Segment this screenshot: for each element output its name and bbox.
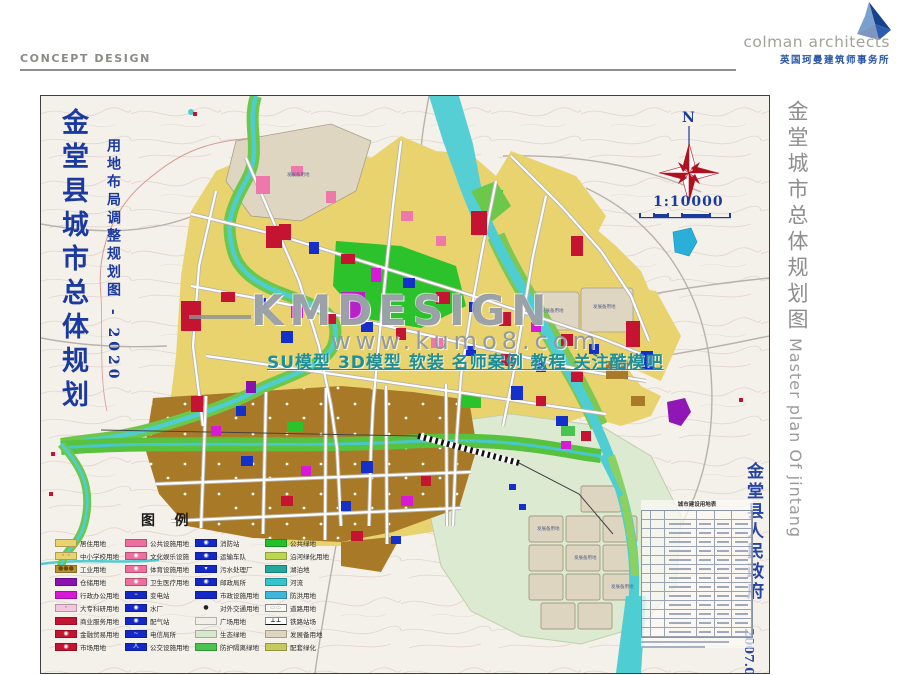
legend-item-label: 河流 — [290, 577, 303, 587]
legend-item: 配套绿化 — [265, 640, 335, 653]
table-cell — [715, 565, 733, 573]
legend-item-label: 道路用地 — [290, 603, 316, 613]
legend-item-label: 卫生医疗用地 — [150, 577, 189, 587]
legend-item: 商业服务用地 — [55, 614, 125, 627]
table-cell — [697, 628, 715, 636]
legend-column: 公共设施用地◉文化娱乐设施◉体育设施用地◉卫生医疗用地⌁变电站◉水厂◉配气站~电… — [125, 536, 195, 653]
table-cell — [642, 610, 651, 618]
table-cell — [665, 574, 697, 582]
table-cell — [642, 601, 651, 609]
table-note — [641, 646, 705, 648]
scale-label: 1:10000 — [653, 194, 724, 210]
legend-item: ◉卫生医疗用地 — [125, 575, 195, 588]
table-cell — [732, 610, 752, 618]
legend-swatch: ▭▭ — [265, 604, 287, 612]
legend-item-label: 防洪用地 — [290, 590, 316, 600]
map-legend: 图 例 居住用地◦ ◦中小学校用地●●●工业用地仓储用地行政办公用地◦大专科研用… — [55, 510, 347, 668]
page-title: CONCEPT DESIGN — [20, 52, 151, 65]
legend-item-label: 体育设施用地 — [150, 564, 189, 574]
legend-swatch — [55, 539, 77, 547]
side-title-chinese: 金堂城市总体规划图 — [782, 100, 812, 350]
table-cell — [651, 556, 664, 564]
legend-item: 市政设施用地 — [195, 588, 265, 601]
legend-swatch: ● — [195, 604, 217, 612]
table-cell — [665, 538, 697, 546]
table-cell — [665, 592, 697, 600]
table-cell — [732, 529, 752, 537]
legend-item: 居住用地 — [55, 536, 125, 549]
legend-item: ◉配气站 — [125, 614, 195, 627]
table-cell — [665, 628, 697, 636]
table-cell — [642, 529, 651, 537]
legend-swatch: ◉ — [125, 578, 147, 586]
legend-item-label: 公交设施用地 — [150, 642, 189, 652]
legend-item: ◉邮政局所 — [195, 575, 265, 588]
table-cell — [665, 583, 697, 591]
table-cell — [697, 520, 715, 528]
legend-swatch: ◉ — [195, 552, 217, 560]
table-cell — [642, 619, 651, 627]
legend-item: ◦大专科研用地 — [55, 601, 125, 614]
table-cell — [642, 511, 651, 519]
table-cell — [642, 574, 651, 582]
table-cell — [665, 619, 697, 627]
table-cell — [697, 601, 715, 609]
table-cell — [651, 619, 664, 627]
legend-item: ◉市场用地 — [55, 640, 125, 653]
land-use-table-title: 城市建设用地表 — [641, 500, 753, 508]
legend-item-label: 居住用地 — [80, 538, 106, 548]
table-cell — [732, 565, 752, 573]
legend-item-label: 广场用地 — [220, 616, 246, 626]
legend-item: 仓储用地 — [55, 575, 125, 588]
legend-swatch — [265, 539, 287, 547]
legend-item: 沿河绿化用地 — [265, 549, 335, 562]
legend-item: 人公交设施用地 — [125, 640, 195, 653]
land-use-table: 城市建设用地表 — [641, 500, 753, 648]
legend-item-label: 公共设施用地 — [150, 538, 189, 548]
legend-columns: 居住用地◦ ◦中小学校用地●●●工业用地仓储用地行政办公用地◦大专科研用地商业服… — [55, 536, 335, 653]
table-cell — [732, 592, 752, 600]
table-cell — [651, 520, 664, 528]
legend-item-label: 商业服务用地 — [80, 616, 119, 626]
legend-swatch — [195, 591, 217, 599]
table-cell — [651, 529, 664, 537]
table-cell — [732, 556, 752, 564]
logo-subtitle: 英国珂曼建筑师事务所 — [780, 52, 890, 66]
legend-column: 公共绿地沿河绿化用地湖泊地河流防洪用地▭▭道路用地⊥⊥铁路站场发展备用地配套绿化 — [265, 536, 335, 653]
legend-item: 防护隔离绿地 — [195, 640, 265, 653]
legend-swatch — [265, 578, 287, 586]
legend-swatch: ●●● — [55, 565, 77, 573]
legend-swatch: ◉ — [195, 578, 217, 586]
table-cell — [732, 628, 752, 636]
legend-swatch: ◉ — [55, 643, 77, 651]
table-cell — [665, 610, 697, 618]
legend-item: ~电信局所 — [125, 627, 195, 640]
table-cell — [715, 520, 733, 528]
legend-swatch: 人 — [125, 643, 147, 651]
reserve-block-label: 发展备用地 — [593, 304, 616, 310]
table-cell — [665, 529, 697, 537]
table-cell — [697, 619, 715, 627]
table-cell — [732, 574, 752, 582]
table-cell — [665, 556, 697, 564]
table-cell — [715, 511, 733, 519]
legend-item: 公共绿地 — [265, 536, 335, 549]
table-cell — [697, 529, 715, 537]
legend-item-label: 铁路站场 — [290, 616, 316, 626]
table-cell — [697, 538, 715, 546]
legend-swatch: ◉ — [125, 604, 147, 612]
table-cell — [715, 592, 733, 600]
legend-item: ◦ ◦中小学校用地 — [55, 549, 125, 562]
table-cell — [732, 583, 752, 591]
table-cell — [651, 601, 664, 609]
table-cell — [715, 601, 733, 609]
legend-item-label: 工业用地 — [80, 564, 106, 574]
reserve-block-label: 发展备用地 — [611, 584, 634, 590]
legend-swatch — [55, 617, 77, 625]
legend-item: ◉体育设施用地 — [125, 562, 195, 575]
table-cell — [732, 511, 752, 519]
table-cell — [697, 610, 715, 618]
legend-item-label: 金融贸易用地 — [80, 629, 119, 639]
legend-item-label: 配气站 — [150, 616, 170, 626]
legend-swatch: ~ — [125, 630, 147, 638]
table-cell — [665, 547, 697, 555]
land-use-table-grid — [641, 510, 753, 638]
table-cell — [651, 538, 664, 546]
legend-item: ▭▭道路用地 — [265, 601, 335, 614]
legend-swatch: ◉ — [125, 617, 147, 625]
legend-item: 行政办公用地 — [55, 588, 125, 601]
legend-swatch: ◦ ◦ — [55, 552, 77, 560]
legend-item: ◉消防站 — [195, 536, 265, 549]
legend-swatch: ⌁ — [125, 591, 147, 599]
legend-swatch — [55, 591, 77, 599]
table-cell — [642, 592, 651, 600]
reserve-block-label: 发展备用地 — [537, 526, 560, 532]
legend-item: ◉金融贸易用地 — [55, 627, 125, 640]
legend-swatch — [265, 565, 287, 573]
legend-item-label: 仓储用地 — [80, 577, 106, 587]
table-cell — [642, 538, 651, 546]
table-cell — [665, 601, 697, 609]
legend-item: ▾污水处理厂 — [195, 562, 265, 575]
legend-swatch: ◉ — [195, 539, 217, 547]
table-cell — [697, 574, 715, 582]
legend-item-label: 水厂 — [150, 603, 163, 613]
legend-swatch — [195, 617, 217, 625]
legend-swatch — [195, 643, 217, 651]
legend-item: 发展备用地 — [265, 627, 335, 640]
table-cell — [642, 556, 651, 564]
legend-swatch — [265, 630, 287, 638]
table-cell — [651, 574, 664, 582]
table-cell — [715, 619, 733, 627]
table-cell — [642, 520, 651, 528]
legend-column: 居住用地◦ ◦中小学校用地●●●工业用地仓储用地行政办公用地◦大专科研用地商业服… — [55, 536, 125, 653]
legend-swatch: ◉ — [125, 565, 147, 573]
legend-item: ●●●工业用地 — [55, 562, 125, 575]
legend-item-label: 对外交通用地 — [220, 603, 259, 613]
header-divider — [20, 69, 736, 71]
legend-item-label: 生态绿地 — [220, 629, 246, 639]
reserve-block-label: 发展备用地 — [574, 555, 597, 561]
legend-swatch: ◦ — [55, 604, 77, 612]
legend-item: ⊥⊥铁路站场 — [265, 614, 335, 627]
table-cell — [665, 511, 697, 519]
legend-swatch — [55, 578, 77, 586]
north-label: N — [682, 110, 695, 126]
legend-item: ◉水厂 — [125, 601, 195, 614]
legend-item-label: 市政设施用地 — [220, 590, 259, 600]
legend-item-label: 电信局所 — [150, 629, 176, 639]
concept-design-slide: { "header": { "label": "CONCEPT DESIGN" … — [0, 0, 900, 675]
legend-item: 防洪用地 — [265, 588, 335, 601]
legend-item-label: 湖泊地 — [290, 564, 310, 574]
legend-swatch — [265, 643, 287, 651]
legend-item: 生态绿地 — [195, 627, 265, 640]
watermark-tagline: SU模型 3D模型 软装 名师案例 教程 关注酷模吧 — [267, 348, 664, 373]
legend-item: 广场用地 — [195, 614, 265, 627]
legend-item-label: 变电站 — [150, 590, 170, 600]
table-cell — [697, 565, 715, 573]
legend-item-label: 消防站 — [220, 538, 240, 548]
table-cell — [697, 547, 715, 555]
legend-item-label: 市场用地 — [80, 642, 106, 652]
table-cell — [732, 601, 752, 609]
legend-item-label: 中小学校用地 — [80, 551, 119, 561]
table-cell — [715, 556, 733, 564]
table-cell — [651, 610, 664, 618]
table-cell — [697, 511, 715, 519]
legend-item-label: 邮政局所 — [220, 577, 246, 587]
reserve-block-label: 发展备用地 — [287, 172, 310, 178]
legend-item: 湖泊地 — [265, 562, 335, 575]
legend-swatch: ◉ — [125, 552, 147, 560]
legend-item: 公共设施用地 — [125, 536, 195, 549]
legend-item-label: 行政办公用地 — [80, 590, 119, 600]
logo-name: colman architects — [743, 33, 890, 51]
table-cell — [651, 628, 664, 636]
table-cell — [642, 583, 651, 591]
legend-swatch: ▾ — [195, 565, 217, 573]
table-cell — [715, 583, 733, 591]
table-cell — [697, 556, 715, 564]
map-title-main: 金堂县城市总体规划 — [53, 108, 92, 448]
table-note — [641, 641, 729, 643]
table-cell — [732, 547, 752, 555]
legend-item-label: 污水处理厂 — [220, 564, 253, 574]
legend-item: ◉文化娱乐设施 — [125, 549, 195, 562]
master-plan-map: N 金堂县城市总体规划 用地布局调整规划图 - 2020 1:10000 金堂县… — [40, 95, 770, 674]
table-cell — [665, 565, 697, 573]
legend-item-label: 防护隔离绿地 — [220, 642, 259, 652]
legend-item: ◉运输车队 — [195, 549, 265, 562]
table-cell — [642, 628, 651, 636]
watermark-dash — [189, 315, 251, 319]
table-cell — [651, 592, 664, 600]
table-cell — [697, 592, 715, 600]
legend-item: ●对外交通用地 — [195, 601, 265, 614]
legend-swatch — [265, 591, 287, 599]
table-cell — [715, 610, 733, 618]
legend-item: ⌁变电站 — [125, 588, 195, 601]
table-cell — [642, 565, 651, 573]
legend-item-label: 公共绿地 — [290, 538, 316, 548]
legend-item-label: 配套绿化 — [290, 642, 316, 652]
table-cell — [715, 628, 733, 636]
map-title-sub: 用地布局调整规划图 - 2020 — [103, 138, 123, 398]
table-cell — [651, 583, 664, 591]
legend-item-label: 发展备用地 — [290, 629, 323, 639]
table-cell — [715, 547, 733, 555]
table-cell — [715, 574, 733, 582]
table-cell — [697, 583, 715, 591]
legend-title: 图 例 — [141, 510, 189, 530]
table-cell — [732, 538, 752, 546]
legend-swatch — [195, 630, 217, 638]
table-cell — [715, 529, 733, 537]
table-cell — [732, 520, 752, 528]
table-cell — [651, 547, 664, 555]
legend-swatch — [125, 539, 147, 547]
table-cell — [665, 520, 697, 528]
table-cell — [642, 547, 651, 555]
legend-item-label: 大专科研用地 — [80, 603, 119, 613]
legend-swatch — [265, 552, 287, 560]
legend-swatch: ⊥⊥ — [265, 617, 287, 625]
table-cell — [651, 565, 664, 573]
table-cell — [715, 538, 733, 546]
legend-item: 河流 — [265, 575, 335, 588]
legend-item-label: 运输车队 — [220, 551, 246, 561]
legend-column: ◉消防站◉运输车队▾污水处理厂◉邮政局所市政设施用地●对外交通用地广场用地生态绿… — [195, 536, 265, 653]
legend-item-label: 文化娱乐设施 — [150, 551, 189, 561]
legend-swatch: ◉ — [55, 630, 77, 638]
legend-item-label: 沿河绿化用地 — [290, 551, 329, 561]
table-cell — [651, 511, 664, 519]
side-title-english: Master plan Of jintang — [786, 338, 805, 548]
table-cell — [732, 619, 752, 627]
